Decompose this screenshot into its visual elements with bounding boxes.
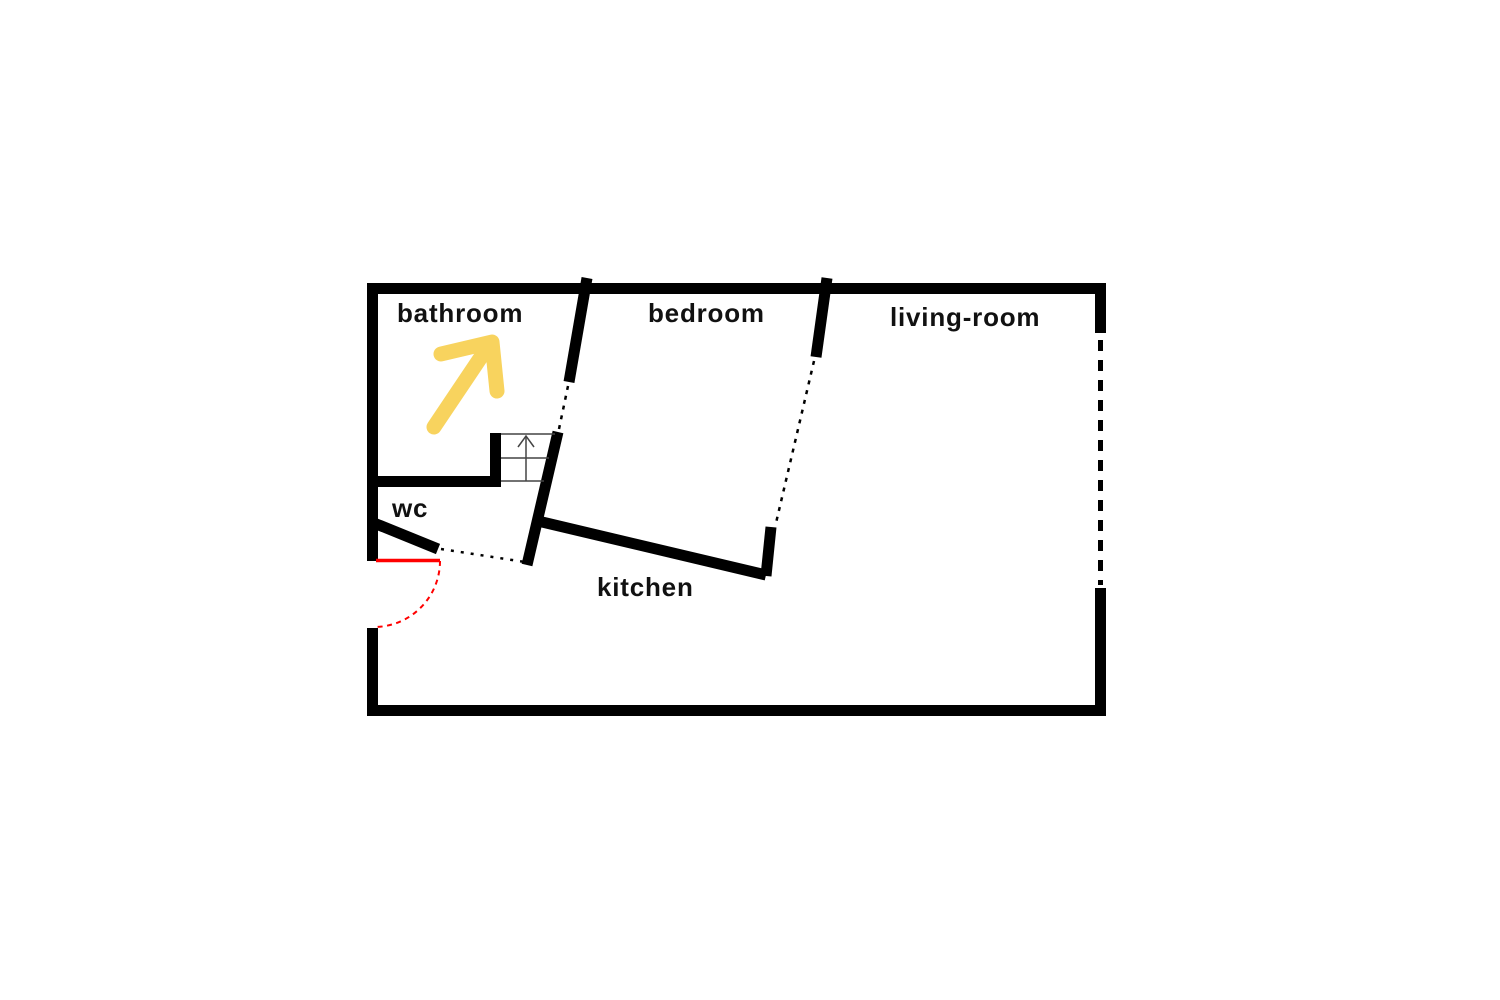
room-label-wc: wc [391, 493, 428, 523]
room-label-kitchen: kitchen [597, 572, 694, 602]
door-swing-arc-icon [374, 561, 440, 627]
room-label-bathroom: bathroom [397, 298, 523, 328]
arrow-shaft [434, 354, 483, 427]
floor-plan: bathroom bedroom living-room wc kitchen [0, 0, 1500, 1000]
room-label-bedroom: bedroom [648, 298, 765, 328]
room-label-living-room: living-room [890, 302, 1040, 332]
bedroom-door-opening [776, 361, 814, 523]
bedroom-hall-wall [527, 432, 558, 565]
up-right-arrow-icon [434, 342, 497, 427]
floor-plan-canvas: bathroom bedroom living-room wc kitchen [0, 0, 1500, 1000]
kitchen-right-stub [766, 527, 771, 576]
kitchen-top-wall [540, 522, 766, 576]
wc-bottom-wall [369, 521, 438, 549]
bathroom-door-opening [559, 386, 568, 429]
entrance-door [374, 561, 440, 628]
wc-door-opening [441, 549, 525, 562]
